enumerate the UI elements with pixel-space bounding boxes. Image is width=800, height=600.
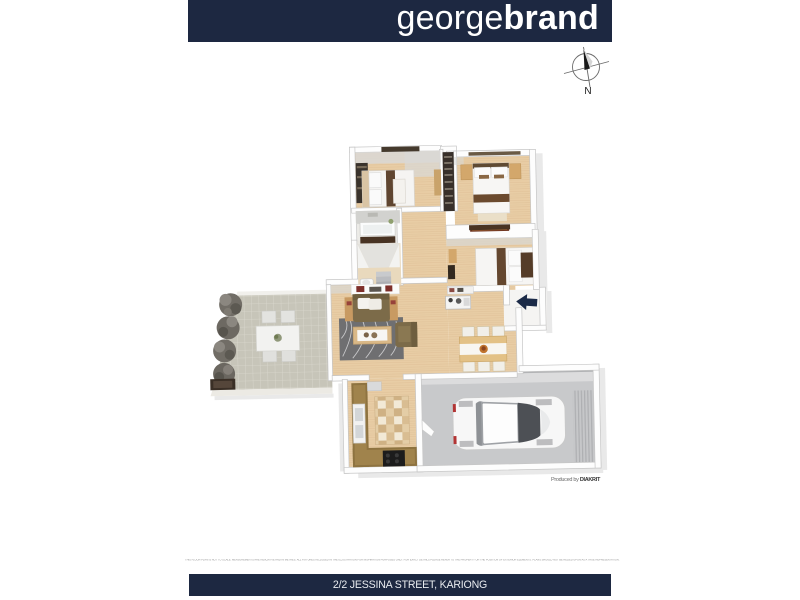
svg-text:N: N [584,86,591,97]
